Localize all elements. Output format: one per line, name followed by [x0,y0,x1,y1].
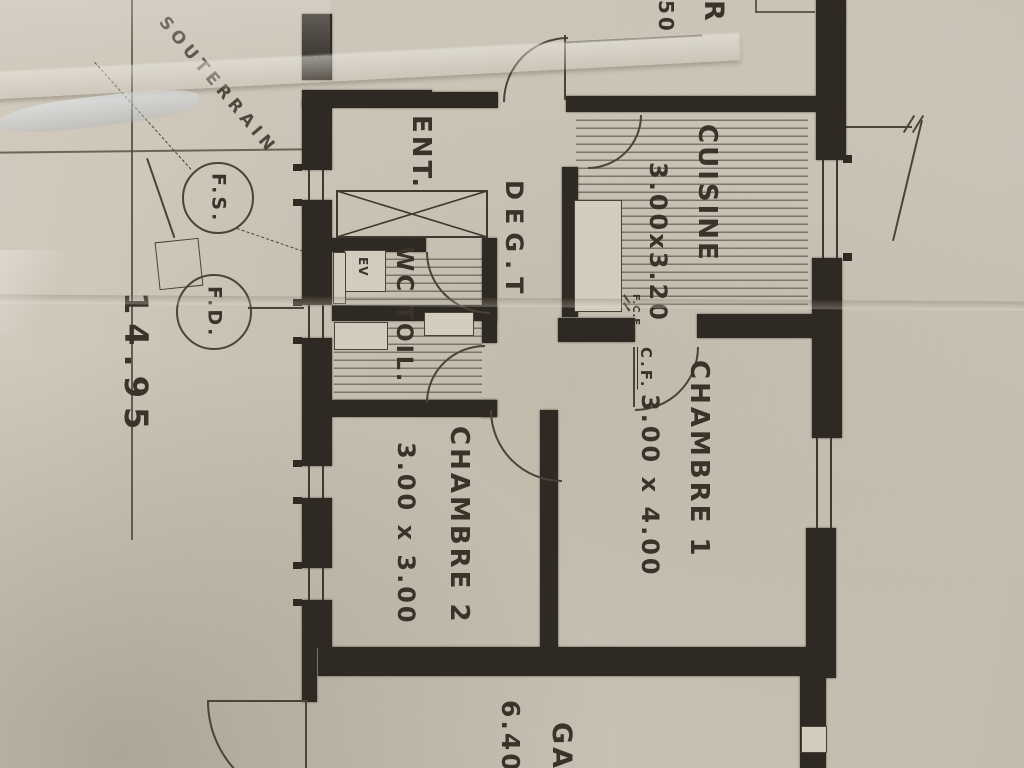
toilette-label: TOIL. [392,305,414,384]
partial-room-r-label: R [700,0,727,24]
cuisine-chambre1-wall [558,318,635,342]
entrance-door-arc [503,37,568,102]
chambre1-door-leaf [633,347,635,407]
window-jamb [293,164,302,171]
chambre2-dimensions: 3.00 x 3.00 [394,442,418,626]
partial-dim-50-label: 50 [656,0,676,34]
garage-opening [801,726,827,753]
left-edge-crease [0,250,65,335]
window-jamb [293,497,302,504]
entree-label: ENT. [408,115,434,190]
window-line [322,305,324,338]
bottom-wall [318,647,818,676]
fosse-drainage-label: F.D. [205,286,224,338]
top-wall-segment [432,92,498,108]
cuisine-label: CUISINE [694,124,720,263]
chambre2-label: CHAMBRE 2 [446,426,472,625]
chambre2-door-arc [490,410,562,482]
right-wall-segment [812,258,842,438]
entrance-door-leaf [564,35,566,100]
window-line [308,568,310,600]
box-connector-line [147,158,176,238]
window-line [822,160,824,258]
souterrain-pipe-dashed-line [94,62,191,170]
top-left-light-area [0,0,330,85]
window-line [308,305,310,338]
fosse-septique-symbol: F.S. [182,162,254,234]
cuisine-counter [574,200,622,312]
cuisine-chambre1-wall [697,314,814,338]
window-line [322,170,324,200]
degagement-label: DEG.T [502,180,526,302]
top-wall-segment [566,96,816,112]
souterrain-label: SOUTERRAIN [155,14,280,158]
garage-dimension-partial: 6.40 [498,700,523,768]
cuisine-dimensions: 3.00x3.20 [646,162,670,323]
right-dimension-line [846,126,912,128]
toilette-basin [424,312,474,336]
floor-plan-photo: SOUTERRAIN F.S. F.D. 14.95 R 50 [0,0,1024,768]
conduit-fcf-label: F.C.F. [630,294,640,329]
window-jamb [293,562,302,569]
window-line [322,466,324,498]
entry-closet-symbol [336,190,488,238]
chambre1-label: CHAMBRE 1 [686,360,712,559]
window-jamb [293,599,302,606]
left-wall-segment [302,14,332,80]
window-line [308,170,310,200]
window-line [322,568,324,600]
window-jamb [293,199,302,206]
wc-pan-fixture [333,252,346,304]
window-line [830,438,832,528]
left-wall-segment [302,200,332,305]
pipe-to-house-dashed-line [237,228,304,252]
conduit-cf-label: C.F. [638,347,653,389]
window-jamb [293,337,302,344]
window-line [308,466,310,498]
door-dimension-line [566,34,702,43]
top-wall-segment [302,90,432,108]
window-line [836,160,838,258]
top-right-detail-line-h [755,11,815,13]
window-jamb [843,253,852,261]
top-right-detail-line-v [755,0,757,12]
fosse-septique-label: F.S. [209,173,228,223]
window-line [816,438,818,528]
chambre1-dimensions: 3.00 x 4.00 [638,394,662,578]
left-wall-segment [302,100,332,170]
right-wall-segment [816,0,846,160]
window-jamb [843,155,852,163]
left-wall-segment [302,498,332,568]
property-boundary-line [131,0,133,540]
fd-to-house-line [248,307,304,309]
window-jamb [293,460,302,467]
wc-label: WC [392,246,415,294]
garden-line [0,148,302,153]
left-wall-garage-stub [302,648,317,702]
boundary-dimension-label: 14.95 [120,292,152,438]
lower-door-arc [207,701,309,768]
paper-tear-highlight [0,84,201,138]
fosse-drainage-symbol: F.D. [176,274,252,350]
diagonal-dimension-line [892,120,922,241]
evier-fixture: EV [344,250,386,292]
left-wall-segment [302,338,332,466]
window-jamb [293,299,302,306]
toilette-counter [334,322,388,350]
garage-right-wall [800,676,826,768]
left-wall-segment [302,600,332,648]
evier-label: EV [357,257,369,276]
garage-label-partial: GA [548,722,575,768]
